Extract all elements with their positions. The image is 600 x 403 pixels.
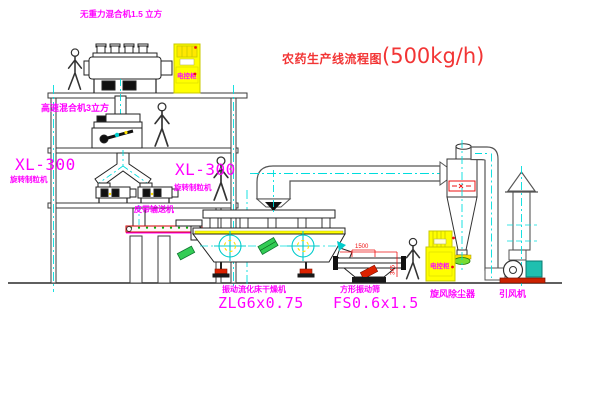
label-granulator-left-model: XL-300 xyxy=(15,157,76,173)
control-cabinet-upper: 电控柜 xyxy=(174,44,200,93)
control-cabinet-lower: 电控柜 xyxy=(426,231,455,281)
cabinet-label: 电控柜 xyxy=(177,71,197,80)
drawing-title: 农药生产线流程图(500kg/h) xyxy=(282,44,484,68)
title-chinese: 农药生产线流程图 xyxy=(282,52,382,66)
induced-draft-fan xyxy=(500,261,545,284)
gravity-mixer xyxy=(84,44,172,93)
label-granulator-left-name: 旋转制粒机 xyxy=(10,176,48,184)
granulator-right xyxy=(138,183,178,203)
title-capacity: (500kg/h) xyxy=(382,44,484,68)
floor-slab-top xyxy=(48,93,247,98)
label-belt-conveyor: 皮带输送机 xyxy=(134,206,174,214)
label-dryer-model: ZLG6x0.75 xyxy=(218,296,304,311)
floor-slab-mid xyxy=(48,148,238,153)
person-figure xyxy=(155,103,169,146)
person-figure xyxy=(69,49,82,89)
y-splitter-duct xyxy=(95,150,151,187)
label-sieve-name: 方形振动筛 xyxy=(340,286,380,294)
label-granulator-right-name: 旋转制粒机 xyxy=(174,184,212,192)
fan-base xyxy=(500,278,545,283)
label-sieve-model: FS0.6x1.5 xyxy=(333,296,419,311)
fan-motor xyxy=(526,261,542,277)
granulator-left xyxy=(96,183,136,203)
conveyor-column-left xyxy=(130,236,142,283)
conveyor-column-right xyxy=(158,236,170,283)
label-high-speed-mixer: 高速混合机3立方 xyxy=(41,104,109,113)
label-granulator-right-model: XL-300 xyxy=(175,162,236,178)
person-figure xyxy=(407,238,420,278)
sieve-length-dimension: 1500 xyxy=(355,244,369,250)
sieve-height-dimension: 345 xyxy=(391,264,397,275)
label-fan: 引风机 xyxy=(499,290,526,299)
dryer-feet xyxy=(213,262,315,278)
diagram-canvas: 1500 345 电控柜 电控柜 农药生产线流程图(500kg/h) 无重力混合… xyxy=(0,0,600,403)
label-dryer-name: 振动流化床干燥机 xyxy=(222,286,286,294)
label-cyclone: 旋风除尘器 xyxy=(430,290,475,299)
label-gravity-mixer: 无重力混合机1.5 立方 xyxy=(80,10,162,19)
cabinet-label: 电控柜 xyxy=(430,261,450,270)
exhaust-duct xyxy=(250,162,451,213)
